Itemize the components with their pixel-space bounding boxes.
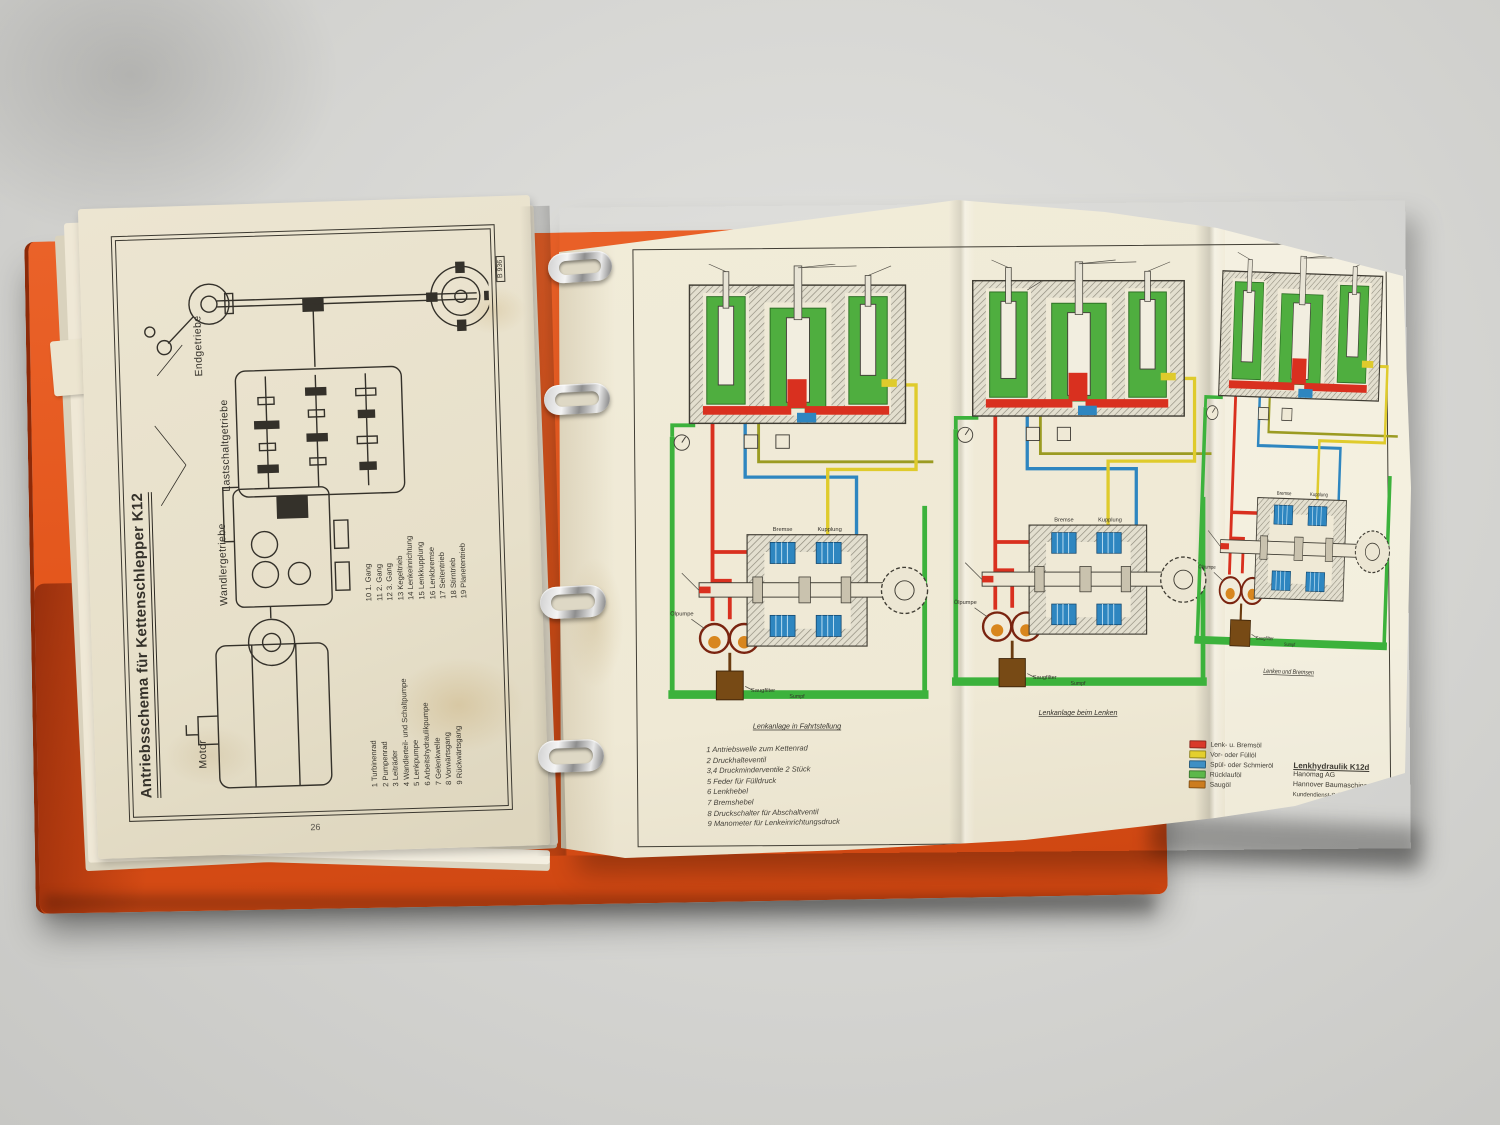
label-kupplung: Kupplung	[1098, 517, 1122, 523]
label-saugfilter: Saugfilter	[751, 688, 775, 694]
binder-ring	[537, 739, 604, 773]
color-swatch	[1189, 780, 1206, 789]
color-swatch	[1189, 770, 1206, 779]
final-drive-drawing	[143, 261, 501, 506]
legend-item: 15 Lenkkupplung	[415, 535, 428, 599]
color-label: Vor- oder Füllöl	[1210, 751, 1256, 759]
page-number: 26	[310, 822, 320, 832]
label-kupplung: Kupplung	[1310, 491, 1329, 498]
color-legend-row: Saugöl	[1189, 779, 1274, 790]
diagram-caption: Lenkanlage beim Lenken	[1039, 710, 1118, 717]
gearbox-drawing	[219, 366, 406, 542]
parts-legend-col1: 1 Turbinenrad 2 Pumpenrad 3 Leiträder 4 …	[367, 677, 466, 788]
label-motor: Motor	[197, 740, 210, 769]
hydraulic-diagram-3: Bremse Kupplung Ölpumpe Saugfilter Sumpf…	[1181, 240, 1410, 702]
diagram-caption: Lenken und Bremsen	[1263, 669, 1314, 677]
rotated-page-content: Antriebsschema für Kettenschlepper K12 M…	[119, 235, 504, 806]
label-bremse: Bremse	[1054, 517, 1073, 523]
numbered-legend: 1 Antriebswelle zum Kettenrad 2 Druckhal…	[706, 743, 840, 830]
color-label: Spül- oder Schmieröl	[1210, 761, 1274, 769]
color-legend: Lenk- u. Bremsöl Vor- oder Füllöl Spül- …	[1189, 739, 1274, 790]
foldout-page: Bremse Kupplung Ölpumpe Saugfilter Sumpf…	[545, 188, 1423, 878]
color-label: Rücklauföl	[1210, 771, 1242, 779]
photo-stage: Antriebsschema für Kettenschlepper K12 M…	[0, 0, 1500, 1125]
color-swatch	[1189, 740, 1206, 749]
label-bremse: Bremse	[773, 527, 793, 533]
label-kupplung: Kupplung	[817, 527, 841, 533]
hydraulic-diagram-1: Bremse Kupplung Ölpumpe Saugfilter Sumpf…	[653, 264, 941, 744]
label-sumpf: Sumpf	[1284, 641, 1296, 647]
binder-ring	[543, 382, 610, 415]
color-label: Lenk- u. Bremsöl	[1210, 741, 1261, 749]
hydraulic-diagram-2: Bremse Kupplung Ölpumpe Saugfilter Sumpf…	[937, 256, 1219, 734]
converter-drawing	[233, 486, 351, 620]
label-sumpf: Sumpf	[789, 694, 805, 700]
label-wandlergetriebe: Wandlergetriebe	[216, 523, 231, 606]
binder-ring	[547, 250, 613, 284]
label-saugfilter: Saugfilter	[1033, 675, 1057, 681]
label-oelpumpe: Ölpumpe	[670, 610, 693, 617]
label-oelpumpe: Ölpumpe	[954, 599, 977, 606]
binder-bottom-shadow	[44, 896, 1154, 922]
label-sumpf: Sumpf	[1071, 681, 1086, 687]
diagram-caption: Lenkanlage in Fahrtstellung	[753, 722, 841, 731]
label-bremse: Bremse	[1277, 490, 1292, 497]
library-stamp: B 936	[496, 256, 506, 283]
label-endgetriebe: Endgetriebe	[191, 315, 205, 376]
label-saugfilter: Saugfilter	[1255, 635, 1274, 642]
parts-legend-col2: 10 1. Gang 11 2. Gang 12 3. Gang 13 Kege…	[362, 534, 470, 601]
color-label: Saugöl	[1210, 781, 1231, 788]
left-page: Antriebsschema für Kettenschlepper K12 M…	[78, 195, 550, 859]
diagram-frame: Antriebsschema für Kettenschlepper K12 M…	[115, 228, 509, 818]
color-swatch	[1189, 760, 1206, 769]
color-swatch	[1189, 750, 1206, 759]
legend-item: 19 Planetentrieb	[458, 534, 471, 598]
paper-stain	[567, 558, 623, 688]
binder-ring	[539, 584, 607, 619]
